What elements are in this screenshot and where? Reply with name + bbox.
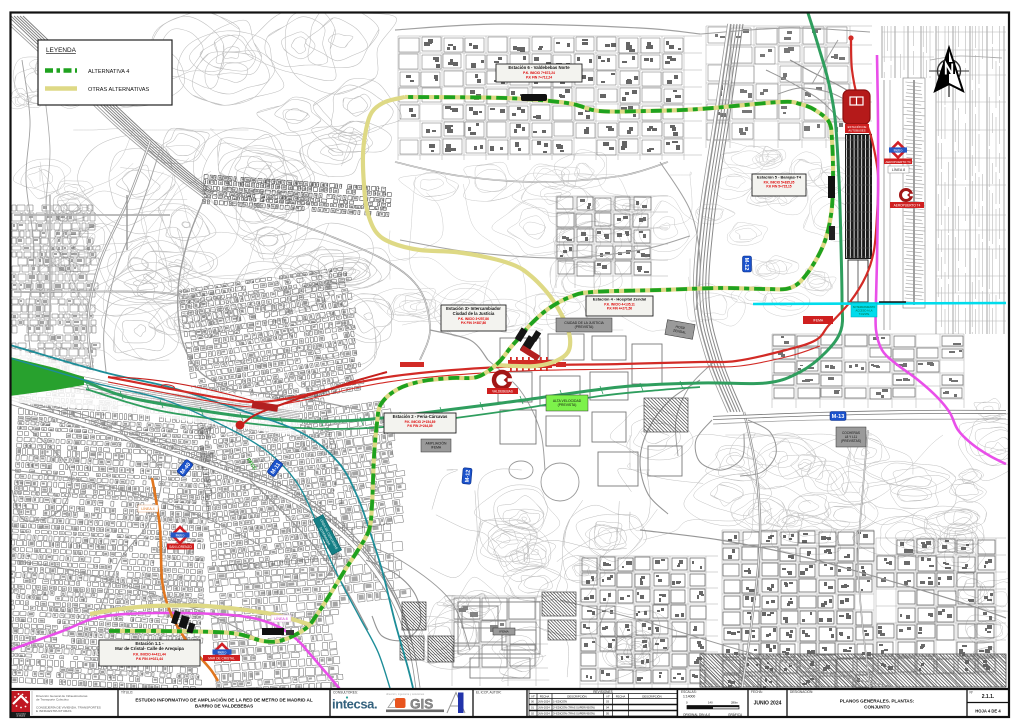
svg-text:M-13: M-13 <box>832 414 845 420</box>
svg-text:Metro: Metro <box>894 149 903 153</box>
svg-text:280m: 280m <box>731 701 739 705</box>
svg-text:FECHA:: FECHA: <box>751 690 763 694</box>
svg-text:ESCALAS:: ESCALAS: <box>681 690 697 694</box>
svg-text:(PREVISTAS): (PREVISTAS) <box>841 439 861 443</box>
svg-text:CONJUNTO: CONJUNTO <box>864 705 890 710</box>
svg-text:GRÁFICA: GRÁFICA <box>728 713 743 717</box>
svg-text:DESCRIPCIÓN: DESCRIPCIÓN <box>642 693 661 698</box>
svg-text:Ciudad de la Justicia: Ciudad de la Justicia <box>453 311 495 316</box>
svg-text:REVISIONES: REVISIONES <box>593 690 613 694</box>
svg-text:AUTOBUSES: AUTOBUSES <box>848 129 865 133</box>
svg-text:140: 140 <box>708 701 713 705</box>
svg-text:DESCRIPCIÓN: DESCRIPCIÓN <box>567 693 586 698</box>
svg-text:FECHA: FECHA <box>616 694 626 698</box>
svg-text:P.K FIN 4+271,56: P.K FIN 4+271,56 <box>607 307 632 311</box>
svg-text:Metro: Metro <box>176 534 185 538</box>
svg-text:GIS: GIS <box>410 697 433 712</box>
svg-text:de Transporte Colectivo: de Transporte Colectivo <box>36 698 69 702</box>
svg-text:Estación 4 - Hospital Zendal: Estación 4 - Hospital Zendal <box>593 297 646 302</box>
svg-text:IFEMA: IFEMA <box>813 319 824 323</box>
svg-text:Estación 6 - Valdebebas Norte: Estación 6 - Valdebebas Norte <box>508 65 570 70</box>
svg-text:ACCESO A LA: ACCESO A LA <box>855 309 872 313</box>
svg-text:LÍNEA 8: LÍNEA 8 <box>274 617 287 621</box>
svg-text:M-12: M-12 <box>743 258 749 271</box>
svg-text:TÍTULO:: TÍTULO: <box>121 691 133 695</box>
svg-text:HOJA 4 DE 4: HOJA 4 DE 4 <box>975 709 1001 714</box>
svg-text:Estación 5 - Barajas-T4: Estación 5 - Barajas-T4 <box>757 175 802 180</box>
svg-text:FECHA: FECHA <box>540 694 550 698</box>
svg-text:IFEMA: IFEMA <box>499 629 508 633</box>
svg-text:LÍNEA 4: LÍNEA 4 <box>141 507 154 511</box>
svg-text:P.K FIN 5+715,15: P.K FIN 5+715,15 <box>766 185 791 189</box>
svg-text:OTRAS ALTERNATIVAS: OTRAS ALTERNATIVAS <box>88 87 150 93</box>
svg-text:Estación 2 - Feria-Cárcavas: Estación 2 - Feria-Cárcavas <box>393 414 448 419</box>
svg-text:JUN-2024: JUN-2024 <box>538 711 550 715</box>
svg-text:SAN LORENZO: SAN LORENZO <box>169 545 192 549</box>
svg-text:P.K FIN 4+021,44: P.K FIN 4+021,44 <box>136 657 163 661</box>
svg-text:ALTERNATIVA 4: ALTERNATIVA 4 <box>88 69 129 75</box>
svg-text:P.K FIN 3+387,86: P.K FIN 3+387,86 <box>461 321 486 325</box>
svg-text:2.1.1.: 2.1.1. <box>982 694 995 700</box>
svg-text:AEROPUERTO T4: AEROPUERTO T4 <box>885 160 911 164</box>
svg-text:LEYENDA: LEYENDA <box>46 47 77 54</box>
svg-text:intecsa.: intecsa. <box>332 697 377 712</box>
svg-text:BARRIO DE VALDEBEBAS: BARRIO DE VALDEBEBAS <box>195 704 253 709</box>
svg-text:Metro: Metro <box>218 651 227 655</box>
svg-text:CONSULTORES:: CONSULTORES: <box>333 691 358 695</box>
svg-text:VALDEBEBAS: VALDEBEBAS <box>492 390 513 394</box>
svg-text:DESIGNACIÓN:: DESIGNACIÓN: <box>790 689 813 694</box>
svg-text:ORIGINAL DIN A-0: ORIGINAL DIN A-0 <box>683 713 710 717</box>
svg-text:EL ICCP, AUTOR:: EL ICCP, AUTOR: <box>476 691 502 695</box>
svg-text:(PREVISTA): (PREVISTA) <box>558 403 577 407</box>
svg-text:IFEMA: IFEMA <box>431 446 442 450</box>
svg-text:Nº: Nº <box>531 694 534 698</box>
svg-text:JUN-2024: JUN-2024 <box>538 699 550 703</box>
svg-text:LÍNEA 8: LÍNEA 8 <box>892 168 905 172</box>
svg-text:(PREVISTA): (PREVISTA) <box>575 325 594 329</box>
svg-text:P.K FIN 2+244,89: P.K FIN 2+244,89 <box>407 424 432 428</box>
svg-text:SOTERRAMIENTO: SOTERRAMIENTO <box>853 305 876 309</box>
svg-text:1:14000: 1:14000 <box>683 695 695 699</box>
svg-text:JUN-2024: JUN-2024 <box>538 705 550 709</box>
svg-text:M-12: M-12 <box>465 469 472 482</box>
svg-text:P.K. INICIO 4+411,44: P.K. INICIO 4+411,44 <box>133 652 166 656</box>
svg-text:JUNIO 2024: JUNIO 2024 <box>754 701 782 707</box>
svg-text:P.K FIN 7+712,24: P.K FIN 7+712,24 <box>526 75 552 79</box>
svg-text:E INFRAESTRUCTURAS: E INFRAESTRUCTURAS <box>36 709 71 713</box>
svg-text:PLANOS GENERALES. PLANTAS:: PLANOS GENERALES. PLANTAS: <box>840 699 915 704</box>
svg-text:Nº: Nº <box>606 694 609 698</box>
svg-text:AEROPUERTO T4: AEROPUERTO T4 <box>894 204 921 208</box>
svg-text:ESTUDIO INFORMATIVO DE AMPLIAC: ESTUDIO INFORMATIVO DE AMPLIACIÓN DE LA … <box>135 696 312 703</box>
svg-text:Mar de Cristal- Calle de Arequ: Mar de Cristal- Calle de Arequipa <box>115 646 184 651</box>
svg-text:T4 ESTE: T4 ESTE <box>859 312 870 316</box>
svg-text:MAR DE CRISTAL: MAR DE CRISTAL <box>208 657 235 661</box>
svg-text:de Madrid: de Madrid <box>16 714 24 717</box>
